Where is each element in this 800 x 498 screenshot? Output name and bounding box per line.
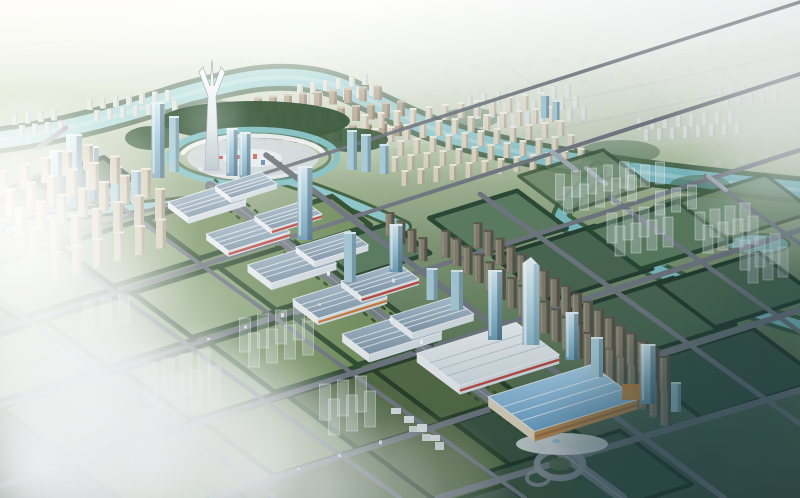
masterplan-aerial-rendering xyxy=(0,0,800,498)
color-grade xyxy=(0,0,800,498)
scene-svg xyxy=(0,0,800,498)
